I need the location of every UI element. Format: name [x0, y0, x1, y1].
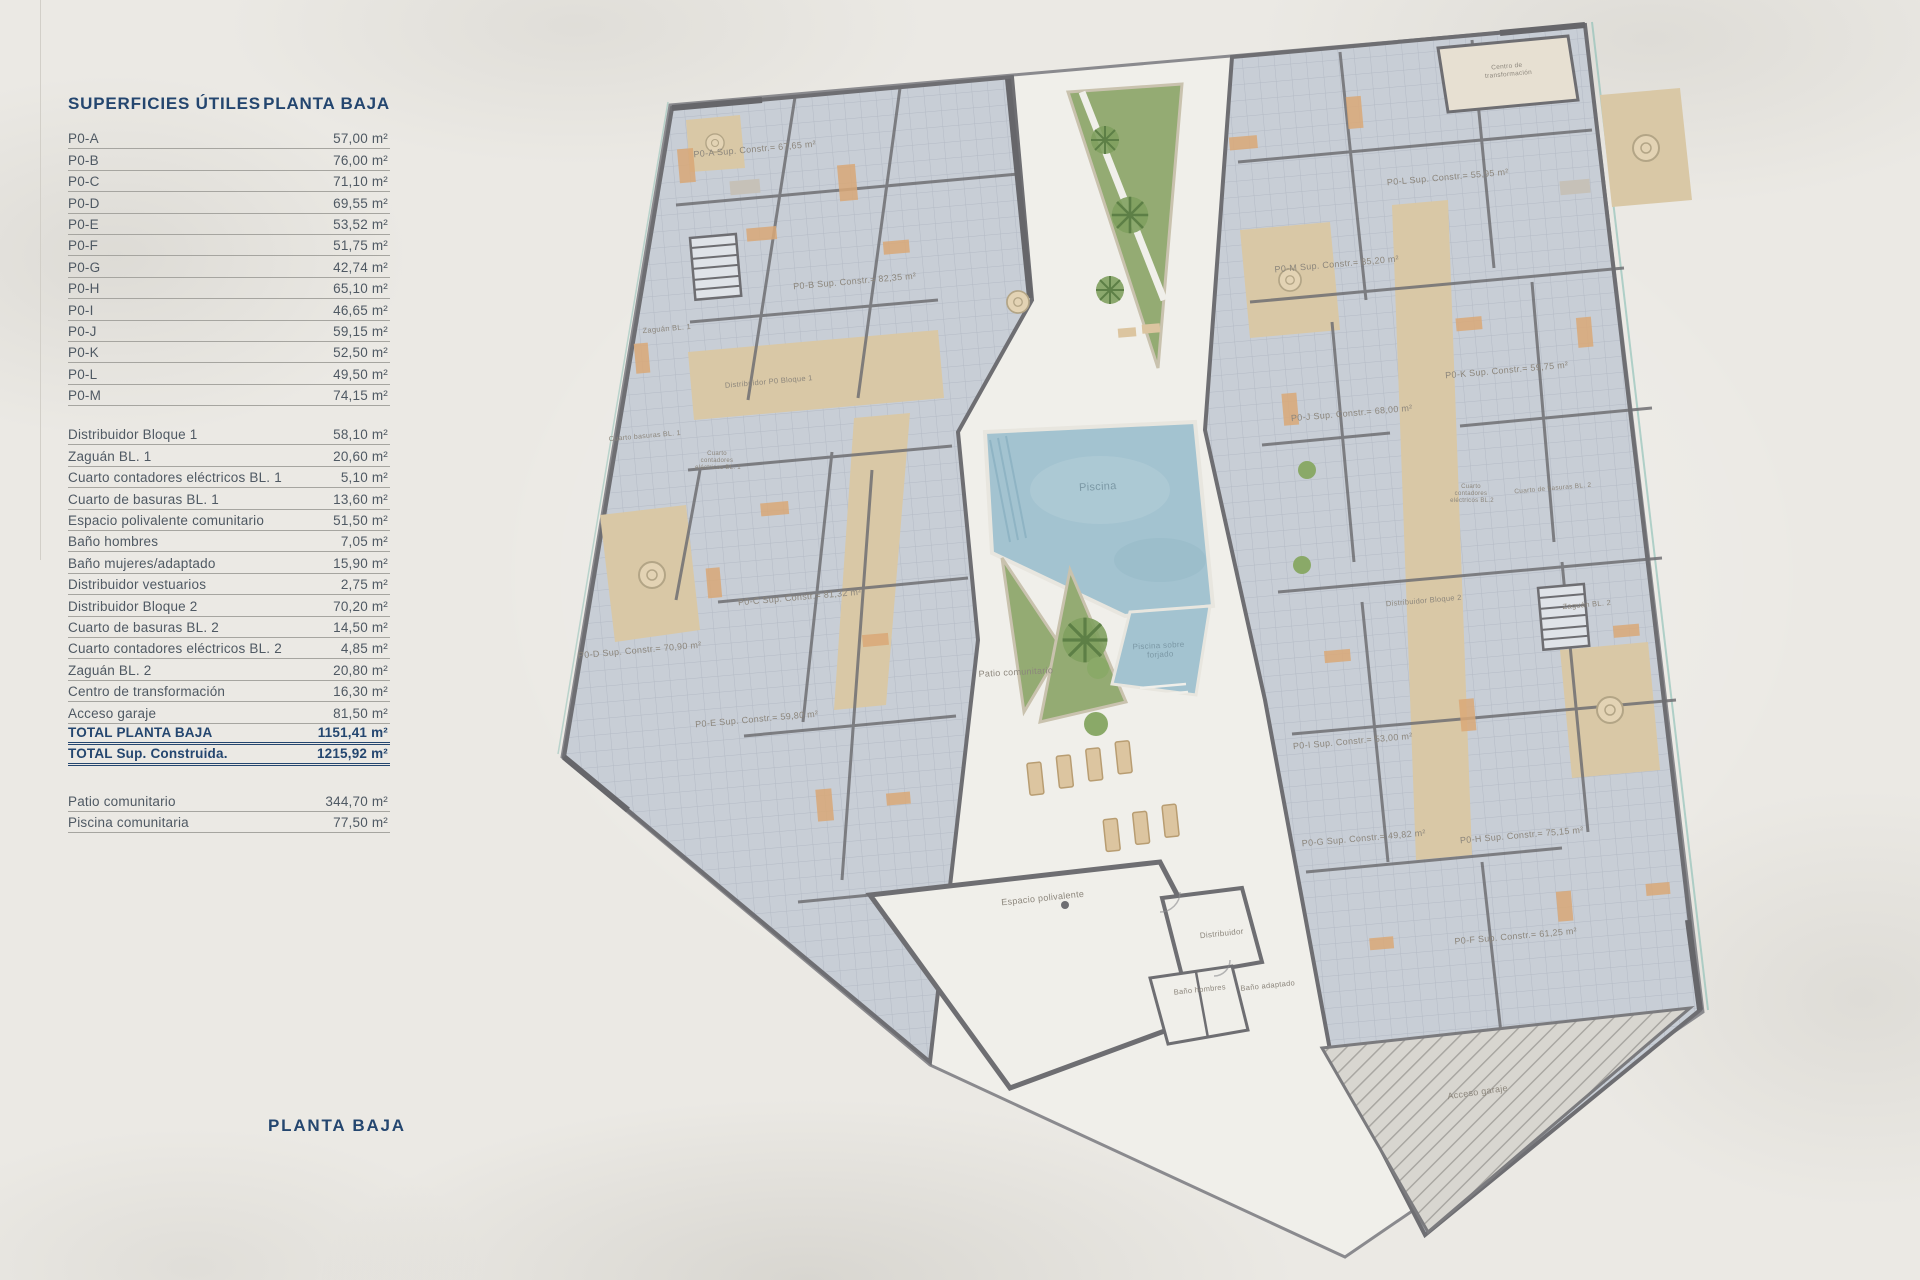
- row-label: Distribuidor vestuarios: [68, 577, 206, 592]
- units-section: P0-A57,00 m² P0-B76,00 m² P0-C71,10 m² P…: [68, 128, 390, 406]
- row-label: P0-D: [68, 196, 100, 211]
- row-label: P0-G: [68, 260, 100, 275]
- table-row: Piscina comunitaria77,50 m²: [68, 812, 390, 833]
- row-label: P0-F: [68, 238, 98, 253]
- row-value: 16,30 m²: [333, 684, 388, 699]
- row-label: P0-K: [68, 345, 99, 360]
- table-row: P0-G42,74 m²: [68, 256, 390, 277]
- row-value: 49,50 m²: [333, 367, 388, 382]
- table-row: Acceso garaje81,50 m²: [68, 702, 390, 723]
- table-row: Centro de transformación16,30 m²: [68, 681, 390, 702]
- row-value: 51,75 m²: [333, 238, 388, 253]
- row-value: 57,00 m²: [333, 131, 388, 146]
- row-label: Cuarto contadores eléctricos BL. 1: [68, 470, 282, 485]
- table-row: Espacio polivalente comunitario51,50 m²: [68, 510, 390, 531]
- table-row: Cuarto de basuras BL. 214,50 m²: [68, 617, 390, 638]
- table-row: Distribuidor Bloque 158,10 m²: [68, 424, 390, 445]
- outdoor-section: Patio comunitario344,70 m² Piscina comun…: [68, 790, 390, 833]
- row-label: Baño hombres: [68, 534, 158, 549]
- row-label: Cuarto de basuras BL. 1: [68, 492, 219, 507]
- row-label: Piscina comunitaria: [68, 815, 189, 830]
- table-row: P0-A57,00 m²: [68, 128, 390, 149]
- row-value: 81,50 m²: [333, 706, 388, 721]
- table-subtitle: PLANTA BAJA: [263, 94, 390, 114]
- row-value: 77,50 m²: [333, 815, 388, 830]
- surface-table: SUPERFICIES ÚTILES PLANTA BAJA P0-A57,00…: [68, 94, 390, 833]
- row-label: P0-L: [68, 367, 97, 382]
- table-row: P0-F51,75 m²: [68, 235, 390, 256]
- plan-title: PLANTA BAJA: [268, 1116, 406, 1136]
- row-label: Espacio polivalente comunitario: [68, 513, 264, 528]
- row-value: 5,10 m²: [341, 470, 388, 485]
- table-row: P0-K52,50 m²: [68, 342, 390, 363]
- table-row: Distribuidor vestuarios2,75 m²: [68, 574, 390, 595]
- row-value: 51,50 m²: [333, 513, 388, 528]
- row-value: 76,00 m²: [333, 153, 388, 168]
- row-label: Centro de transformación: [68, 684, 225, 699]
- row-value: 70,20 m²: [333, 599, 388, 614]
- row-label: Distribuidor Bloque 1: [68, 427, 198, 442]
- table-row: P0-I46,65 m²: [68, 299, 390, 320]
- row-label: P0-B: [68, 153, 99, 168]
- commons-section: Distribuidor Bloque 158,10 m² Zaguán BL.…: [68, 424, 390, 766]
- row-value: 74,15 m²: [333, 388, 388, 403]
- table-row: Distribuidor Bloque 270,20 m²: [68, 595, 390, 616]
- row-value: 53,52 m²: [333, 217, 388, 232]
- row-label: P0-M: [68, 388, 101, 403]
- table-row: Zaguán BL. 220,80 m²: [68, 659, 390, 680]
- row-value: 13,60 m²: [333, 492, 388, 507]
- row-value: 59,15 m²: [333, 324, 388, 339]
- table-row: Patio comunitario344,70 m²: [68, 790, 390, 811]
- table-row: P0-D69,55 m²: [68, 192, 390, 213]
- row-value: 15,90 m²: [333, 556, 388, 571]
- row-value: 14,50 m²: [333, 620, 388, 635]
- row-label: P0-H: [68, 281, 100, 296]
- row-label: Distribuidor Bloque 2: [68, 599, 198, 614]
- row-value: 4,85 m²: [341, 641, 388, 656]
- row-label: Cuarto contadores eléctricos BL. 2: [68, 641, 282, 656]
- table-row: P0-M74,15 m²: [68, 385, 390, 406]
- table-row: Cuarto de basuras BL. 113,60 m²: [68, 488, 390, 509]
- row-value: 7,05 m²: [341, 534, 388, 549]
- row-label: P0-C: [68, 174, 100, 189]
- total-row: TOTAL PLANTA BAJA1151,41 m²: [68, 724, 390, 745]
- table-row: P0-H65,10 m²: [68, 278, 390, 299]
- row-label: P0-I: [68, 303, 94, 318]
- row-value: 46,65 m²: [333, 303, 388, 318]
- table-row: Cuarto contadores eléctricos BL. 15,10 m…: [68, 467, 390, 488]
- row-value: 58,10 m²: [333, 427, 388, 442]
- row-label: P0-E: [68, 217, 99, 232]
- row-value: 1151,41 m²: [318, 725, 388, 740]
- row-value: 69,55 m²: [333, 196, 388, 211]
- row-value: 65,10 m²: [333, 281, 388, 296]
- table-row: P0-C71,10 m²: [68, 171, 390, 192]
- row-label: P0-A: [68, 131, 99, 146]
- row-label: TOTAL Sup. Construida.: [68, 746, 228, 761]
- row-label: Baño mujeres/adaptado: [68, 556, 216, 571]
- table-row: P0-J59,15 m²: [68, 321, 390, 342]
- pool-label: Piscina: [1079, 480, 1118, 494]
- row-value: 20,60 m²: [333, 449, 388, 464]
- row-value: 71,10 m²: [333, 174, 388, 189]
- total-row: TOTAL Sup. Construida.1215,92 m²: [68, 745, 390, 766]
- row-label: Acceso garaje: [68, 706, 156, 721]
- row-value: 52,50 m²: [333, 345, 388, 360]
- row-label: Patio comunitario: [68, 794, 176, 809]
- table-row: P0-B76,00 m²: [68, 149, 390, 170]
- table-row: P0-E53,52 m²: [68, 214, 390, 235]
- row-label: Zaguán BL. 1: [68, 449, 151, 464]
- row-value: 1215,92 m²: [317, 746, 388, 761]
- row-value: 42,74 m²: [333, 260, 388, 275]
- table-header: SUPERFICIES ÚTILES PLANTA BAJA: [68, 94, 390, 114]
- row-value: 344,70 m²: [325, 794, 388, 809]
- table-row: Zaguán BL. 120,60 m²: [68, 445, 390, 466]
- row-label: TOTAL PLANTA BAJA: [68, 725, 212, 740]
- row-value: 2,75 m²: [341, 577, 388, 592]
- row-value: 20,80 m²: [333, 663, 388, 678]
- table-row: Baño mujeres/adaptado15,90 m²: [68, 552, 390, 573]
- row-label: Cuarto de basuras BL. 2: [68, 620, 219, 635]
- row-label: Zaguán BL. 2: [68, 663, 151, 678]
- table-row: Baño hombres7,05 m²: [68, 531, 390, 552]
- table-row: P0-L49,50 m²: [68, 363, 390, 384]
- table-row: Cuarto contadores eléctricos BL. 24,85 m…: [68, 638, 390, 659]
- row-label: P0-J: [68, 324, 97, 339]
- table-title: SUPERFICIES ÚTILES: [68, 94, 261, 114]
